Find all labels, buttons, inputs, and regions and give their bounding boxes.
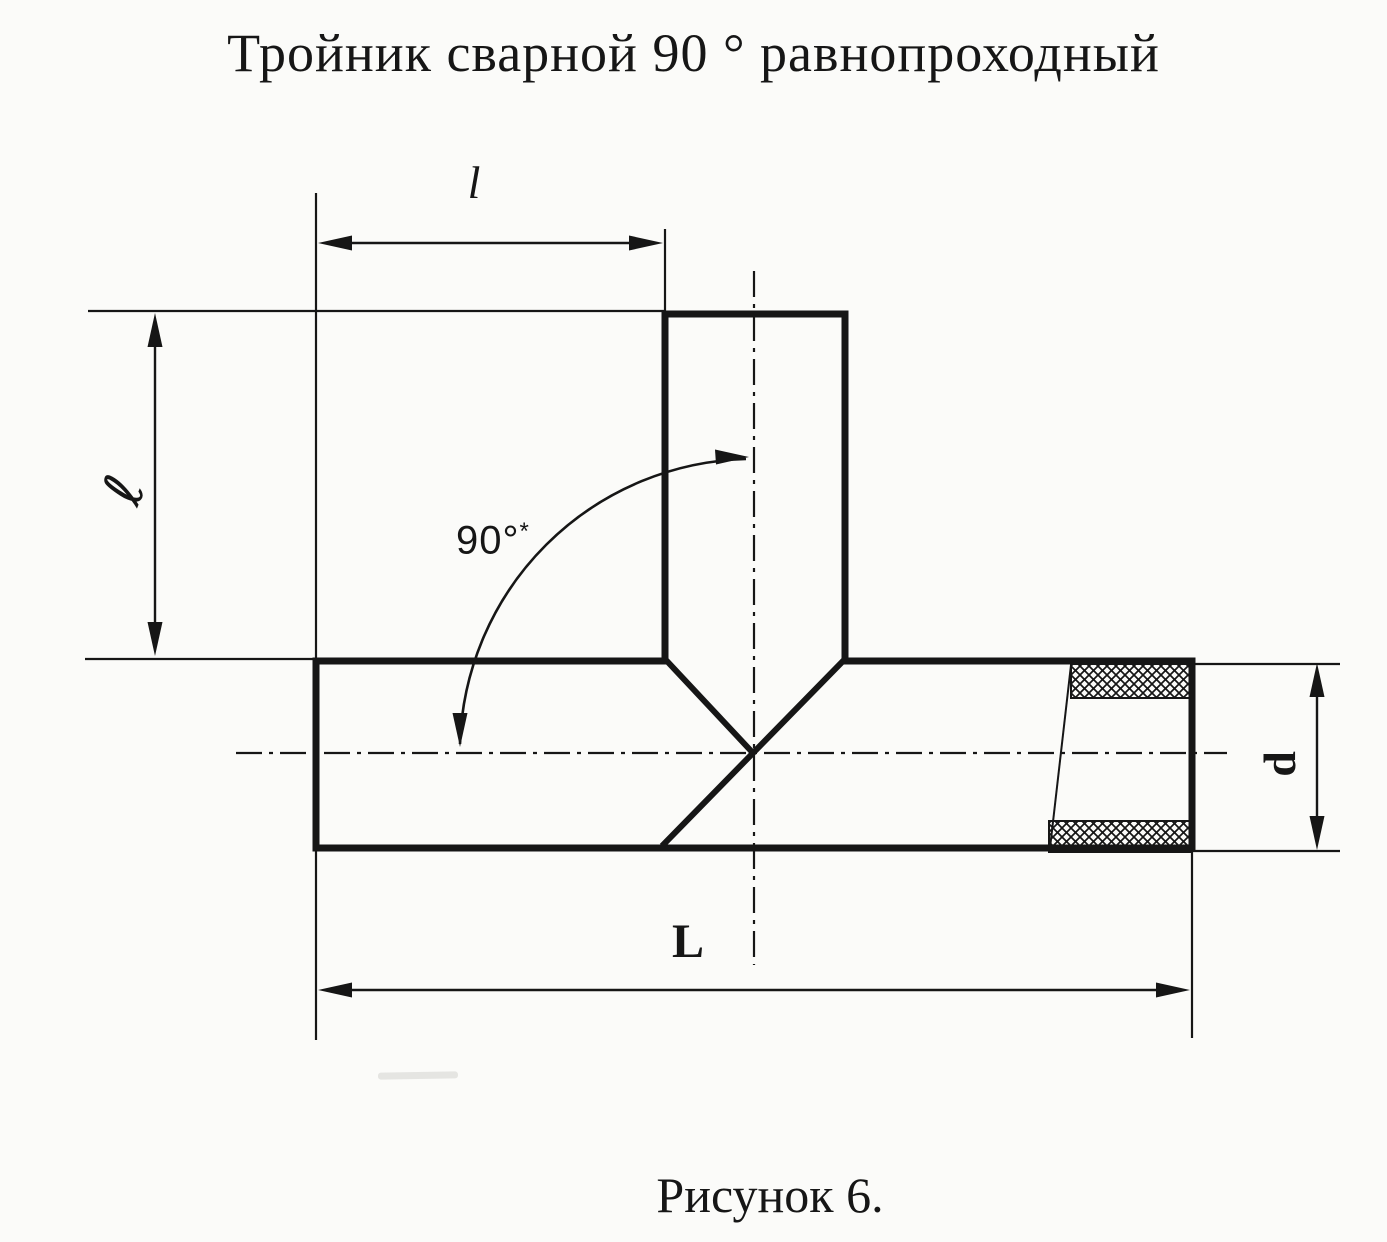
figure-caption: Рисунок 6. <box>560 1166 980 1224</box>
label-diameter: d <box>1241 725 1317 803</box>
dimension-L <box>318 983 1190 998</box>
scanned-drawing-page: Тройник сварной 90 ° равнопроходный <box>0 0 1387 1242</box>
label-overall-length: L <box>648 914 728 969</box>
technical-drawing <box>0 0 1387 1242</box>
scan-smudge-artifact <box>378 1071 458 1079</box>
label-branch-offset: l <box>438 156 510 209</box>
angle-value: 90° <box>456 518 520 562</box>
extension-lines <box>85 193 1340 1040</box>
label-angle: 90°* <box>456 518 530 563</box>
dimension-l <box>318 236 663 251</box>
angle-star-mark: * <box>520 518 530 545</box>
wall-section-hatch-top <box>1071 664 1192 698</box>
